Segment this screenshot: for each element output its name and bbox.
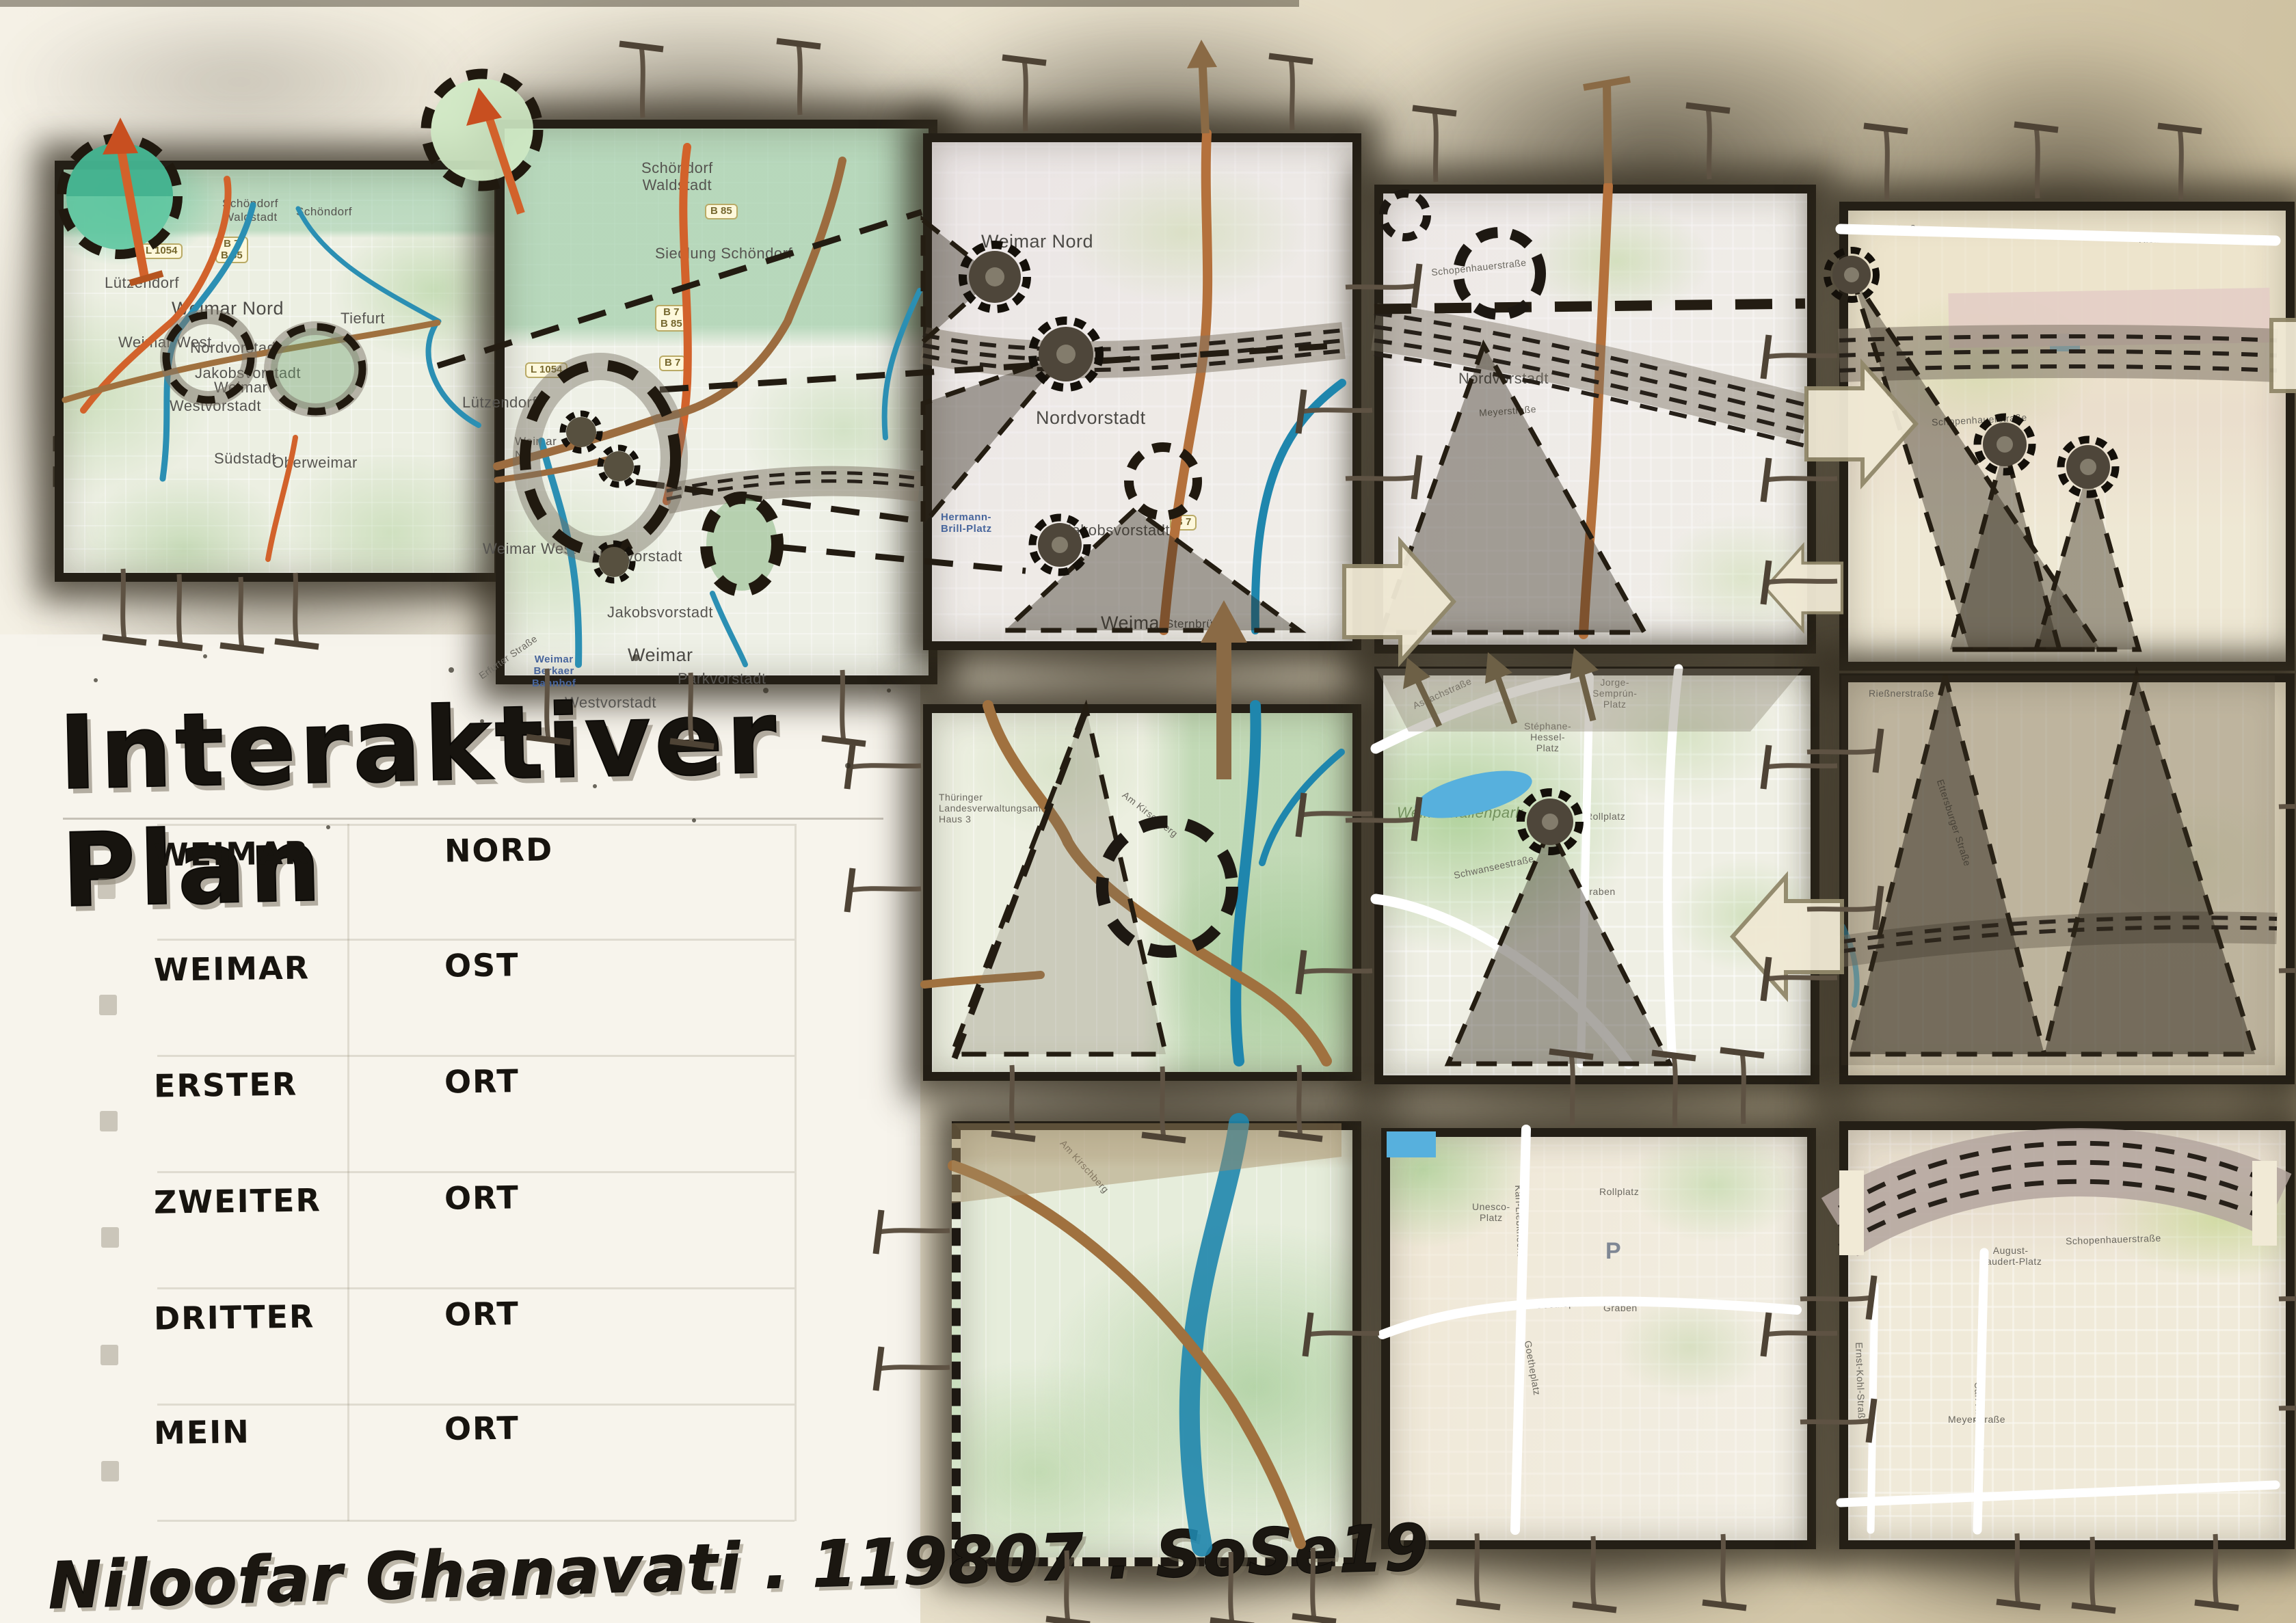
map-label: Stéphane- Hessel- Platz: [1524, 721, 1571, 753]
map-label: Goetheplatz: [1523, 1340, 1543, 1397]
north-district-map-panel: Schöndorf Waldstadt Siedlung Schöndorf B…: [496, 120, 937, 684]
map-label: Lützendorf: [105, 274, 179, 291]
photo-edge: [0, 0, 1299, 7]
map-label: Unesco- Platz: [1472, 1201, 1510, 1223]
legend-label: ORT: [444, 1295, 520, 1333]
map-label: Ettersburger Straße: [1935, 778, 1973, 868]
legend-label: OST: [444, 946, 520, 984]
map-label: Rollplatz: [1599, 1186, 1639, 1197]
map-label: Südstadt: [214, 450, 276, 467]
tape-tab: [99, 995, 117, 1015]
map-label: Weimar: [628, 645, 693, 666]
map-label: Schöndorf Waldstadt: [641, 159, 713, 194]
road-badge: B 7 B 85: [215, 237, 248, 263]
road-badge: B 7: [659, 356, 686, 371]
charcoal-smudge: [0, 0, 479, 164]
map-label: August- Baudert-Platz: [1979, 1245, 2042, 1267]
legend-label: ERSTER: [154, 1066, 298, 1105]
legend-label: ZWEITER: [154, 1181, 322, 1220]
map-label: Graben: [1603, 1302, 1638, 1313]
map-label: Weimar Nord: [981, 231, 1093, 252]
legend-label: MEIN: [154, 1413, 251, 1451]
landesverwaltungsamt-map-panel: Thüringer Landesverwaltungsamt Haus 3 Am…: [923, 704, 1361, 1081]
map-label: Oberweimar: [272, 454, 358, 471]
map-label: Schopenhauerstraße: [1932, 412, 2027, 427]
map-label: Weimar West: [483, 540, 576, 557]
road-badge: B 7 B 85: [655, 305, 688, 332]
legend-grid: [157, 1287, 795, 1289]
ettersburger-map-panel: Rießnerstraße Ettersburger Straße: [1839, 673, 2295, 1084]
map-label: Weimar Nord: [515, 435, 557, 461]
map-label: Schöndorf Waldstadt: [222, 197, 278, 224]
tape-tab: [98, 878, 116, 899]
tape-tab: [100, 1111, 118, 1131]
legend-label: ORT: [444, 1062, 520, 1101]
legend-item-mein-ort: MEIN ORT: [154, 1413, 251, 1451]
legend-item-weimar-nord: WEIMAR NORD: [154, 834, 310, 873]
poster-title: Interaktiver Plan: [57, 675, 910, 930]
map-label: Weimar: [214, 379, 267, 396]
legend-label: ORT: [444, 1410, 520, 1448]
map-label: Rießnerstraße: [2139, 234, 2204, 245]
map-label: Asbachstraße: [1411, 675, 1473, 711]
map-label: Am Kirschberg: [1120, 789, 1179, 839]
tape-tab: [101, 1345, 118, 1365]
map-label: Schöndorf: [296, 205, 352, 219]
map-label: Nordvorstadt: [190, 339, 280, 356]
road-badge: B 85: [705, 204, 738, 219]
map-label: Rollplatz: [1586, 811, 1625, 822]
map-label: Schwanseestraße: [1453, 853, 1535, 881]
hauptbahnhof-map-panel: August- Baudert-Platz Schopenhauerstraße…: [1839, 1121, 2295, 1549]
map-label: Graben: [1581, 886, 1616, 897]
map-label: Rießnerstraße: [1856, 223, 1922, 234]
map-label: Am Kirschberg: [1058, 1138, 1111, 1195]
goetheplatz-map-panel: Unesco- Platz Goetheplatz Goetheplatz Gr…: [1381, 1128, 1816, 1549]
map-label: Ernst-Kohl-Straße: [1854, 1342, 1867, 1425]
legend-label: DRITTER: [154, 1298, 315, 1337]
map-label: Westvorstadt: [170, 397, 261, 414]
map-label: Weimar: [1101, 613, 1166, 634]
legend-grid: [157, 1520, 795, 1522]
map-label: Siedlung Schöndorf: [655, 245, 792, 262]
parking-label: P: [1605, 1238, 1621, 1265]
weimarhallenpark-map-panel: Weimarhallenpark Asbachstraße Schwansees…: [1374, 667, 1819, 1084]
map-label: Carl-August-Allee: [1973, 1382, 1986, 1463]
legend-label: ORT: [444, 1179, 520, 1217]
legend-item-dritter-ort: DRITTER ORT: [154, 1298, 315, 1337]
road-badge: B 7: [1170, 515, 1197, 531]
legend-grid: [795, 824, 797, 1521]
map-label: Jakobsvorstadt: [195, 364, 301, 381]
map-label: Rießnerstraße: [1869, 688, 1934, 699]
map-label: Hermann- Brill-Platz: [941, 511, 992, 535]
legend-grid: [157, 1055, 795, 1057]
legend-item-weimar-ost: WEIMAR OST: [154, 949, 310, 988]
map-label: Meyerstraße: [1948, 1414, 2005, 1425]
map-label: Schopenhauerstraße: [2066, 1233, 2161, 1247]
map-label: Goetheplatz: [1535, 1297, 1591, 1311]
map-label: Nordvorstadt: [1036, 407, 1146, 429]
poster-board: Schöndorf Waldstadt Schöndorf L 1054 B 7…: [0, 0, 2296, 1623]
map-label: Meyerstraße: [1479, 403, 1537, 418]
map-label: Weimar Nord: [172, 298, 284, 319]
map-label: Jakobsvorstadt: [1064, 522, 1170, 539]
map-label: Tiefurt: [341, 310, 385, 327]
map-label: Karl-Liebknecht-Straße: [1513, 1185, 1527, 1291]
legend-label: NORD: [444, 831, 554, 869]
railway-fan-map-panel: Nordvorstadt Schopenhauerstraße Meyerstr…: [1374, 185, 1816, 654]
legend-label: WEIMAR: [154, 834, 310, 873]
legend-label: WEIMAR: [154, 949, 310, 988]
legend-item-erster-ort: ERSTER ORT: [154, 1066, 298, 1105]
map-label: Nordvorstadt: [592, 548, 682, 565]
tape-tab: [101, 1461, 119, 1481]
map-label: Jakobsvorstadt: [607, 604, 713, 621]
overview-map-panel: Schöndorf Waldstadt Schöndorf L 1054 B 7…: [55, 161, 503, 582]
road-badge: L 1054: [525, 362, 568, 378]
legend-grid: [157, 1171, 795, 1173]
map-label: Weimar West: [118, 334, 212, 351]
map-label: Weimarhallenpark: [1397, 804, 1523, 821]
map-label: Jorge- Semprún- Platz: [1592, 677, 1637, 710]
map-label: Schopenhauerstraße: [1431, 257, 1527, 278]
road-badge: L 1054: [140, 243, 183, 259]
legend-item-zweiter-ort: ZWEITER ORT: [154, 1181, 322, 1220]
pencil-rule: [63, 818, 883, 820]
nordvorstadt-map-panel: Weimar Nord Nordvorstadt Jakobsvorstadt …: [923, 133, 1361, 650]
map-label: Nordvorstadt: [1458, 370, 1549, 387]
tape-tab: [101, 1227, 119, 1248]
map-label: Rießnerstraße: [1995, 228, 2061, 239]
legend-grid: [157, 1404, 795, 1406]
riessnerstrasse-map-panel: Rießnerstraße Rießnerstraße Rießnerstraß…: [1839, 202, 2295, 671]
map-label: Sternbrücke: [1166, 617, 1232, 631]
legend-grid: [157, 939, 795, 941]
map-label: Thüringer Landesverwaltungsamt Haus 3: [939, 792, 1044, 824]
ilm-valley-map-panel: Am Kirschberg: [952, 1121, 1361, 1566]
